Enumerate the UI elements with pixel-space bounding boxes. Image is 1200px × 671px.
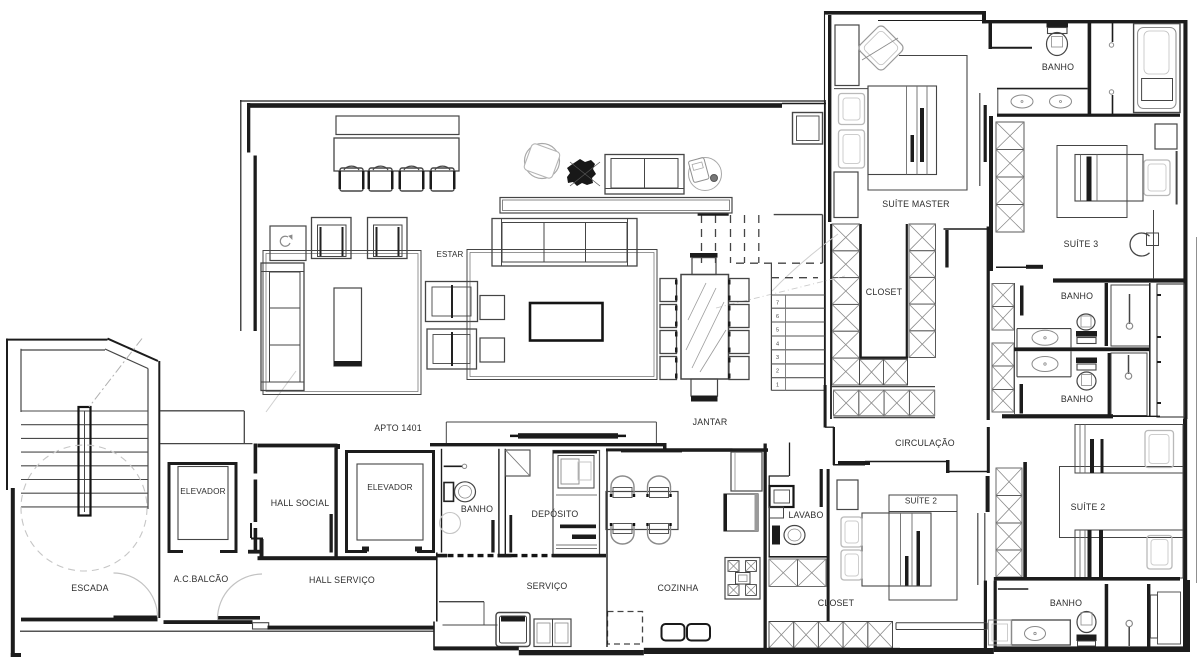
svg-text:CLOSET: CLOSET bbox=[818, 598, 855, 608]
svg-text:2: 2 bbox=[776, 369, 779, 375]
svg-text:CLOSET: CLOSET bbox=[866, 287, 903, 297]
svg-text:CIRCULAÇÃO: CIRCULAÇÃO bbox=[895, 438, 955, 448]
svg-text:BANHO: BANHO bbox=[1061, 394, 1093, 404]
svg-text:1: 1 bbox=[776, 383, 779, 389]
svg-text:SERVIÇO: SERVIÇO bbox=[527, 581, 568, 591]
svg-text:SUÍTE 3: SUÍTE 3 bbox=[1064, 239, 1099, 249]
svg-text:3: 3 bbox=[776, 355, 779, 361]
svg-text:ELEVADOR: ELEVADOR bbox=[367, 483, 413, 492]
svg-text:APTO 1401: APTO 1401 bbox=[374, 423, 422, 433]
svg-text:HALL SERVIÇO: HALL SERVIÇO bbox=[309, 575, 375, 585]
svg-text:6: 6 bbox=[776, 314, 779, 320]
svg-text:ESCADA: ESCADA bbox=[71, 583, 108, 593]
svg-text:A.C.BALCÃO: A.C.BALCÃO bbox=[174, 574, 229, 584]
svg-text:BANHO: BANHO bbox=[1061, 291, 1093, 301]
svg-text:BANHO: BANHO bbox=[1042, 62, 1074, 72]
svg-text:7: 7 bbox=[776, 301, 779, 307]
svg-text:LAVABO: LAVABO bbox=[788, 510, 823, 520]
svg-text:SUÍTE 2: SUÍTE 2 bbox=[905, 496, 938, 506]
svg-text:HALL SOCIAL: HALL SOCIAL bbox=[271, 498, 330, 508]
svg-text:BANHO: BANHO bbox=[461, 504, 493, 514]
svg-text:SUÍTE MASTER: SUÍTE MASTER bbox=[882, 199, 949, 209]
svg-text:4: 4 bbox=[776, 341, 779, 347]
svg-text:ESTAR: ESTAR bbox=[436, 250, 463, 259]
svg-text:SUÍTE 2: SUÍTE 2 bbox=[1071, 502, 1106, 512]
svg-text:COZINHA: COZINHA bbox=[658, 583, 699, 593]
svg-text:ELEVADOR: ELEVADOR bbox=[180, 487, 226, 496]
svg-text:DEPÓSITO: DEPÓSITO bbox=[532, 509, 579, 519]
svg-text:5: 5 bbox=[776, 328, 779, 334]
svg-text:BANHO: BANHO bbox=[1050, 598, 1082, 608]
svg-text:JANTAR: JANTAR bbox=[693, 417, 728, 427]
